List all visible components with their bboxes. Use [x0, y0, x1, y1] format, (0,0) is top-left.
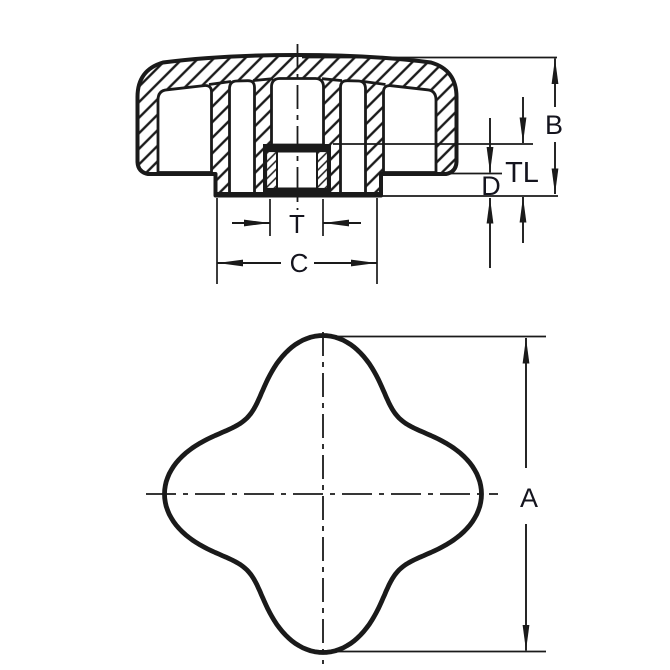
- dim-label-d: D: [481, 171, 501, 201]
- drawing-canvas: B TL D T C: [0, 0, 670, 670]
- section-view: B TL D T C: [138, 44, 564, 284]
- plan-view: A: [146, 332, 546, 664]
- dim-label-b: B: [545, 110, 563, 140]
- technical-drawing-page: B TL D T C: [0, 0, 670, 670]
- plan-centerlines: [146, 332, 498, 664]
- dim-label-t: T: [289, 209, 305, 239]
- rib-gap-right: [341, 81, 366, 194]
- pocket-left: [158, 86, 212, 173]
- rib-gap-left: [230, 81, 255, 194]
- dim-label-c: C: [290, 248, 309, 278]
- dim-label-tl: TL: [505, 157, 539, 189]
- pocket-right: [384, 86, 437, 173]
- hub-bottom-face: [214, 192, 381, 197]
- dim-label-a: A: [520, 483, 538, 513]
